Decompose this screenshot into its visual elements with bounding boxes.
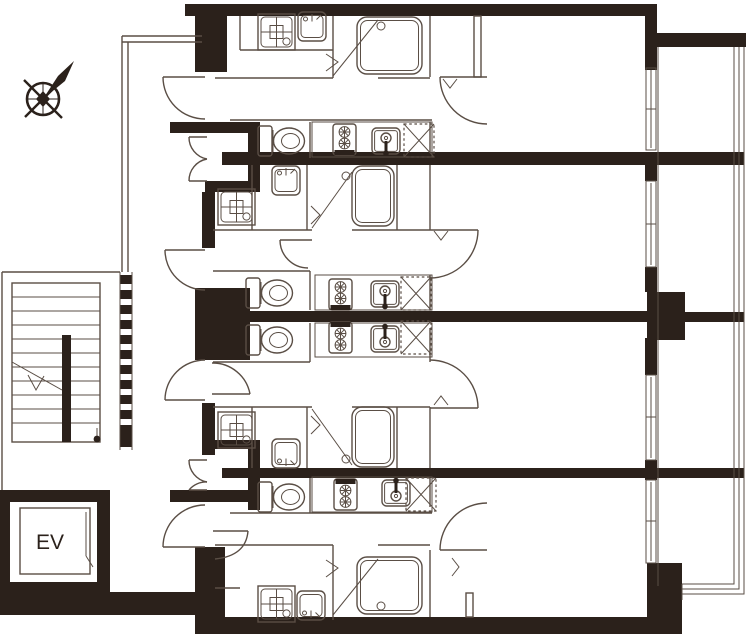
floor-plan-svg: EV (0, 0, 746, 634)
handrail-end (94, 436, 101, 443)
elevator-label: EV (36, 531, 64, 554)
floor-plan-page: EV (0, 0, 746, 634)
elevator: EV (0, 490, 110, 592)
